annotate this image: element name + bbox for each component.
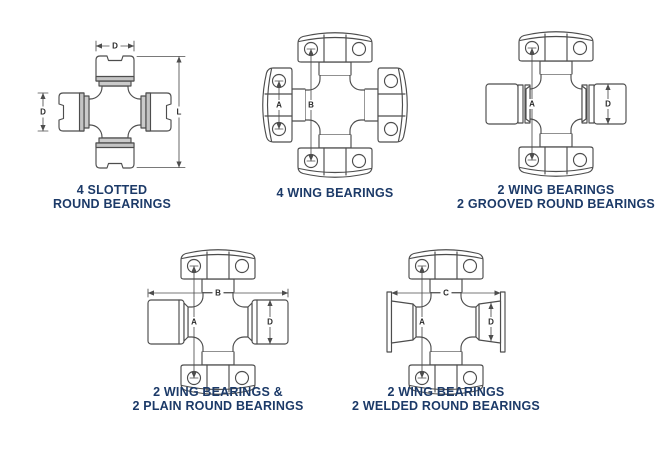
caption-line: 4 WING BEARINGS (235, 186, 435, 200)
caption-line: 2 WING BEARINGS (331, 385, 561, 399)
dimension-a: A (417, 266, 427, 378)
u-joint-bearing-types-figure: D D L A (0, 0, 670, 450)
dimension-a: A (527, 48, 537, 160)
dim-label-c: C (443, 289, 449, 298)
caption-line: 4 SLOTTED (12, 183, 212, 197)
dimension-d-left: D (38, 93, 48, 131)
caption-4-wing-bearings: 4 WING BEARINGS (235, 186, 435, 200)
dim-label-l: L (177, 108, 182, 117)
dimension-b: B (148, 288, 288, 298)
welded-round-bearing-left (387, 292, 416, 352)
dimension-a: A (189, 266, 199, 378)
wing-bearing-right (365, 68, 407, 142)
dim-label-a: A (419, 318, 425, 327)
caption-line: 2 GROOVED ROUND BEARINGS (442, 197, 670, 211)
dim-label-b: B (215, 289, 221, 298)
dim-label-a: A (276, 101, 282, 110)
cross-body (89, 86, 141, 138)
grooved-round-bearing-left (486, 84, 530, 124)
dim-label-b: B (308, 101, 314, 110)
caption-line: ROUND BEARINGS (12, 197, 212, 211)
caption-4-slotted-round-bearings: 4 SLOTTED ROUND BEARINGS (12, 183, 212, 211)
wing-bearing-bottom (519, 134, 593, 176)
dimension-d-top: D (96, 41, 134, 51)
dim-label-a: A (529, 100, 535, 109)
caption-line: 2 WING BEARINGS (442, 183, 670, 197)
dim-label-d: D (605, 100, 611, 109)
slotted-bearing-right (141, 93, 171, 131)
dim-label-d: D (267, 318, 273, 327)
slotted-bearing-bottom (96, 138, 134, 168)
wing-bearing-top (409, 250, 483, 292)
caption-2-wing-2-plain: 2 WING BEARINGS & 2 PLAIN ROUND BEARINGS (103, 385, 333, 413)
caption-line: 2 WELDED ROUND BEARINGS (331, 399, 561, 413)
dimension-b: B (306, 49, 316, 161)
slotted-bearing-top (96, 56, 134, 86)
caption-2-wing-2-grooved: 2 WING BEARINGS 2 GROOVED ROUND BEARINGS (442, 183, 670, 211)
dim-label-d-left: D (40, 108, 46, 117)
caption-line: 2 WING BEARINGS & (103, 385, 333, 399)
dim-label-a: A (191, 318, 197, 327)
wing-bearing-top (181, 250, 255, 292)
diagram-2-wing-2-grooved: A D (456, 14, 656, 194)
plain-round-bearing-left (148, 300, 188, 344)
dimension-c: C (392, 288, 501, 298)
diagram-4-wing-bearings: A B (235, 15, 435, 195)
wing-bearing-top (519, 32, 593, 74)
diagram-4-slotted-round-bearings: D D L (15, 22, 215, 192)
caption-2-wing-2-welded: 2 WING BEARINGS 2 WELDED ROUND BEARINGS (331, 385, 561, 413)
dim-label-d: D (488, 318, 494, 327)
caption-line: 2 PLAIN ROUND BEARINGS (103, 399, 333, 413)
wing-bearing-top (298, 33, 372, 75)
wing-bearing-bottom (298, 135, 372, 177)
dim-label-d-top: D (112, 42, 118, 51)
slotted-bearing-left (59, 93, 89, 131)
